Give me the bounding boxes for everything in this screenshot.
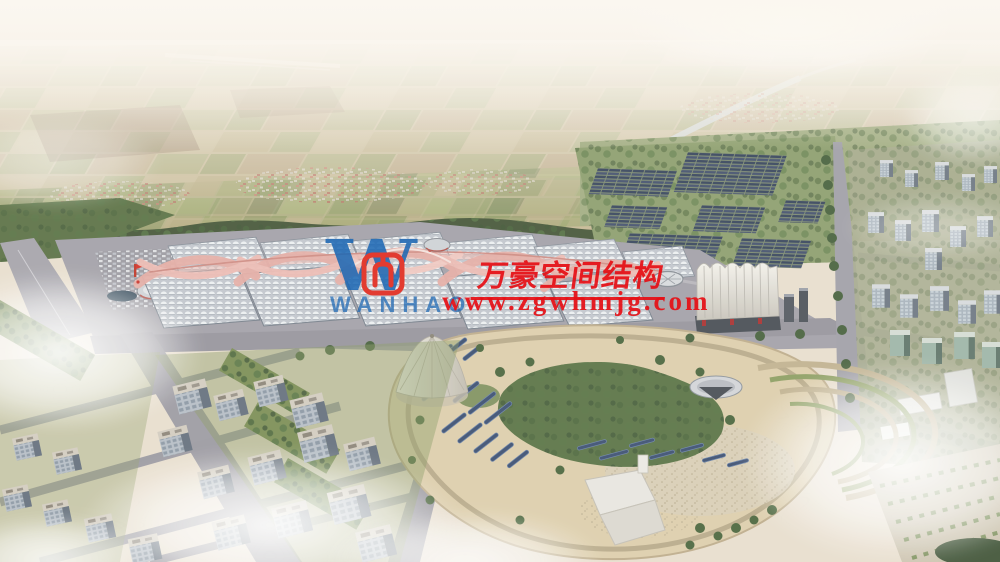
scene-illustration (0, 0, 1000, 562)
rendering-canvas: W WANHAO 万豪空间结构 www.zgwhmjg.com (0, 0, 1000, 562)
exhibition-halls (136, 232, 700, 329)
city-right (848, 140, 1000, 470)
